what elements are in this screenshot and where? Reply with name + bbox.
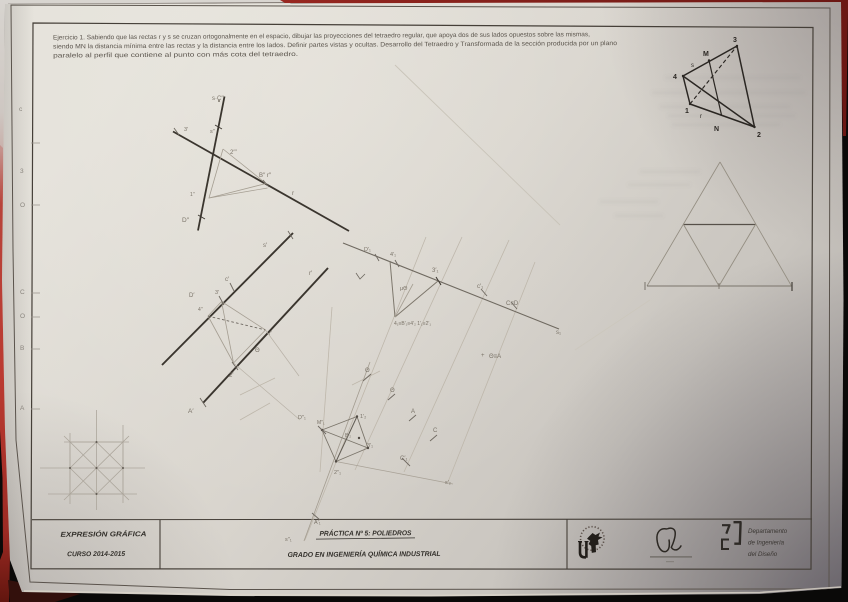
svg-text:3: 3 xyxy=(733,37,737,44)
svg-text:D′′: D′′ xyxy=(182,217,190,224)
svg-text:3′: 3′ xyxy=(215,290,219,296)
svg-text:B: B xyxy=(20,345,24,352)
svg-text:s₁: s₁ xyxy=(556,330,561,336)
svg-text:O: O xyxy=(20,313,25,320)
svg-text:paralelo al perfil que contien: paralelo al perfil que contiene al punto… xyxy=(53,51,298,59)
svg-text:Θ: Θ xyxy=(255,348,260,354)
svg-text:CURSO 2014-2015: CURSO 2014-2015 xyxy=(67,551,125,558)
svg-text:del Diseño: del Diseño xyxy=(748,551,778,558)
svg-text:A: A xyxy=(411,409,415,415)
svg-text:C′₁: C′₁ xyxy=(400,456,407,462)
svg-text:2: 2 xyxy=(757,132,761,139)
svg-text:C≡D: C≡D xyxy=(506,301,519,307)
svg-text:1′′: 1′′ xyxy=(190,192,195,198)
svg-text:D′′₁: D′′₁ xyxy=(298,415,306,421)
svg-text:2′′₁: 2′′₁ xyxy=(334,470,341,476)
svg-text:Θ: Θ xyxy=(365,368,370,374)
svg-text:c′₁: c′₁ xyxy=(477,284,483,290)
svg-text:1: 1 xyxy=(685,108,689,115)
svg-text:O: O xyxy=(20,202,25,209)
svg-text:M: M xyxy=(703,51,709,58)
svg-text:de Ingeniería: de Ingeniería xyxy=(748,540,785,547)
svg-text:s·C′′: s·C′′ xyxy=(212,96,224,102)
svg-text:+: + xyxy=(481,353,485,359)
svg-text:r′: r′ xyxy=(269,331,272,337)
svg-text:B′₂: B′₂ xyxy=(345,433,351,439)
svg-text:Θ: Θ xyxy=(390,388,395,394)
svg-text:4′₁: 4′₁ xyxy=(390,252,396,258)
svg-text:Departamento: Departamento xyxy=(748,528,788,535)
svg-text:N: N xyxy=(714,126,719,133)
svg-text:3′₁: 3′₁ xyxy=(432,268,439,274)
svg-text:4′′: 4′′ xyxy=(198,307,203,313)
svg-text:D′₁: D′₁ xyxy=(364,247,371,253)
svg-text:s′′₁: s′′₁ xyxy=(285,537,292,543)
svg-text:3: 3 xyxy=(20,168,24,175)
svg-text:3′: 3′ xyxy=(184,127,188,133)
svg-text:2′′′: 2′′′ xyxy=(230,150,238,156)
svg-text:s′₂: s′₂ xyxy=(445,480,451,486)
svg-text:s′′: s′′ xyxy=(210,129,215,135)
svg-text:M′′₁: M′′₁ xyxy=(317,420,325,426)
svg-text:μΘ: μΘ xyxy=(400,286,408,292)
svg-text:B′′ r′′: B′′ r′′ xyxy=(259,173,272,179)
svg-text:A′: A′ xyxy=(188,408,194,415)
svg-text:4: 4 xyxy=(673,74,677,81)
svg-text:A′₁: A′₁ xyxy=(314,520,321,526)
svg-text:D′: D′ xyxy=(189,293,195,299)
svg-text:1′₂: 1′₂ xyxy=(360,414,366,420)
svg-text:s: s xyxy=(691,63,694,69)
svg-text:C: C xyxy=(433,428,438,434)
svg-text:r: r xyxy=(700,114,702,120)
svg-text:Θ≡A: Θ≡A xyxy=(489,354,501,360)
svg-text:A: A xyxy=(20,405,25,412)
svg-text:3′₁: 3′₁ xyxy=(367,443,373,449)
svg-text:4₁≡B′₁≡4′₂ 1′₁≡2′₁: 4₁≡B′₁≡4′₂ 1′₁≡2′₁ xyxy=(394,321,431,327)
svg-text:C: C xyxy=(20,289,25,296)
